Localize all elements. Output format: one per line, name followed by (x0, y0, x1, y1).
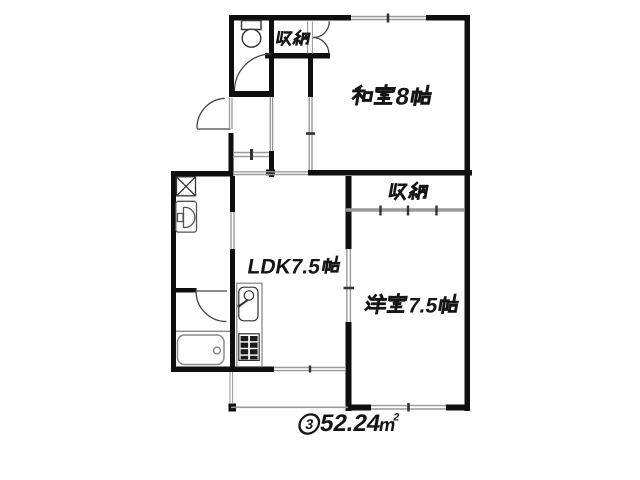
svg-text:2: 2 (392, 412, 400, 424)
svg-text:LDK7.5: LDK7.5 (246, 256, 323, 279)
svg-text:7.5: 7.5 (406, 295, 439, 318)
svg-text:8: 8 (393, 84, 411, 111)
svg-text:52.24: 52.24 (318, 410, 383, 437)
svg-text:3: 3 (304, 416, 315, 432)
